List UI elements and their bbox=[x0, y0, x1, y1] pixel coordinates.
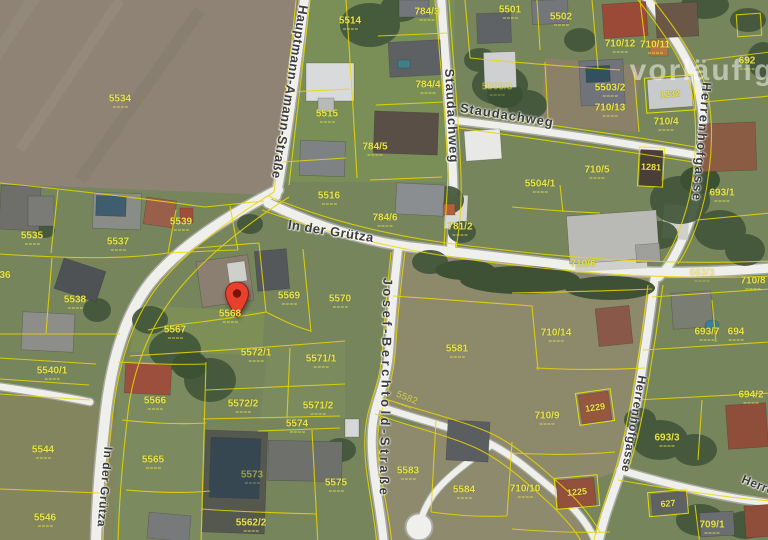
parcel-label: 5514 bbox=[339, 17, 361, 30]
parcel-label: 694 bbox=[728, 328, 745, 341]
parcel-label: 5546 bbox=[34, 514, 56, 527]
parcel-label: 5501 bbox=[499, 6, 521, 19]
parcel-label: 683/3 bbox=[689, 269, 714, 282]
parcel-label: 710/14 bbox=[541, 329, 572, 342]
parcel-label: 5569 bbox=[278, 292, 300, 305]
parcel-label: 5575 bbox=[325, 479, 347, 492]
parcel-label: 5581 bbox=[446, 345, 468, 358]
aerial-cadastral-map[interactable]: vorläufig 123212811229122562755345514551… bbox=[0, 0, 768, 540]
parcel-label: 5574 bbox=[286, 420, 308, 433]
building-outline: 627 bbox=[647, 489, 689, 517]
parcel-label: 5570 bbox=[329, 295, 351, 308]
parcel-label: 710/12 bbox=[605, 40, 636, 53]
parcel-label: 5539 bbox=[170, 218, 192, 231]
parcel-label: 5583 bbox=[397, 467, 419, 480]
parcel-label: 784/3 bbox=[414, 8, 439, 21]
parcel-label: 5504/1 bbox=[525, 180, 556, 193]
building-number: 1229 bbox=[584, 401, 605, 414]
building-number: 1281 bbox=[641, 161, 662, 172]
parcel-label: 5566 bbox=[144, 397, 166, 410]
parcel-label: 710/11 bbox=[640, 41, 670, 54]
parcel-label: 5567 bbox=[164, 326, 186, 339]
parcel-label: 36 bbox=[0, 271, 11, 281]
parcel-label: 709/1 bbox=[699, 521, 724, 534]
parcel-label: 5573 bbox=[241, 471, 263, 484]
building-number: 627 bbox=[660, 497, 676, 508]
parcel-label: 5572/2 bbox=[228, 400, 259, 413]
parcel-label: 5535 bbox=[21, 232, 43, 245]
parcel-label: 5503/3 bbox=[482, 83, 513, 96]
parcel-label: 710/9 bbox=[534, 412, 559, 425]
parcel-label: 5516 bbox=[318, 192, 340, 205]
building-outline: 1232 bbox=[644, 74, 696, 113]
parcel-label: 5534 bbox=[109, 95, 131, 108]
parcel-label: 710/13 bbox=[595, 104, 626, 117]
parcel-label: 5544 bbox=[32, 446, 54, 459]
parcel-label: 710/6 bbox=[570, 260, 595, 273]
parcel-label: 692 bbox=[739, 57, 756, 70]
parcel-label: 693/3 bbox=[654, 434, 679, 447]
parcel-label: 694/2 bbox=[738, 391, 763, 404]
parcel-label: 784/5 bbox=[362, 143, 387, 156]
parcel-label: 5540/1 bbox=[37, 367, 68, 380]
parcel-label: 5571/1 bbox=[306, 355, 337, 368]
parcel-label: 710/10 bbox=[510, 485, 541, 498]
parcel-label: 781/2 bbox=[447, 223, 472, 236]
building-outline: 1281 bbox=[637, 146, 665, 187]
parcel-label: 5503/2 bbox=[595, 84, 626, 97]
building-number: 1225 bbox=[567, 486, 588, 498]
parcel-label: 5562/2 bbox=[236, 519, 267, 532]
parcel-label: 710/4 bbox=[653, 118, 678, 131]
parcel-label: 5572/1 bbox=[241, 349, 272, 362]
parcel-label: 784/6 bbox=[372, 214, 397, 227]
parcel-label: 5515 bbox=[316, 110, 338, 123]
parcel-label: 693/7 bbox=[694, 328, 719, 341]
building-outline: 1229 bbox=[575, 388, 615, 426]
building-outline: 1225 bbox=[554, 474, 601, 510]
parcel-label: 784/4 bbox=[415, 81, 440, 94]
parcel-label: 5565 bbox=[142, 456, 164, 469]
building-number: 1232 bbox=[660, 88, 681, 99]
parcel-label: 5571/2 bbox=[303, 402, 334, 415]
parcel-label: 710/8 bbox=[740, 277, 765, 290]
parcel-label: 5502 bbox=[550, 13, 572, 26]
parcel-label: 710/5 bbox=[584, 166, 609, 179]
parcel-label: 5538 bbox=[64, 296, 86, 309]
parcel-label: 693/1 bbox=[709, 189, 734, 202]
parcel-label: 5537 bbox=[107, 238, 129, 251]
parcel-label: 5584 bbox=[453, 486, 475, 499]
parcel-label: 5568 bbox=[219, 310, 241, 323]
